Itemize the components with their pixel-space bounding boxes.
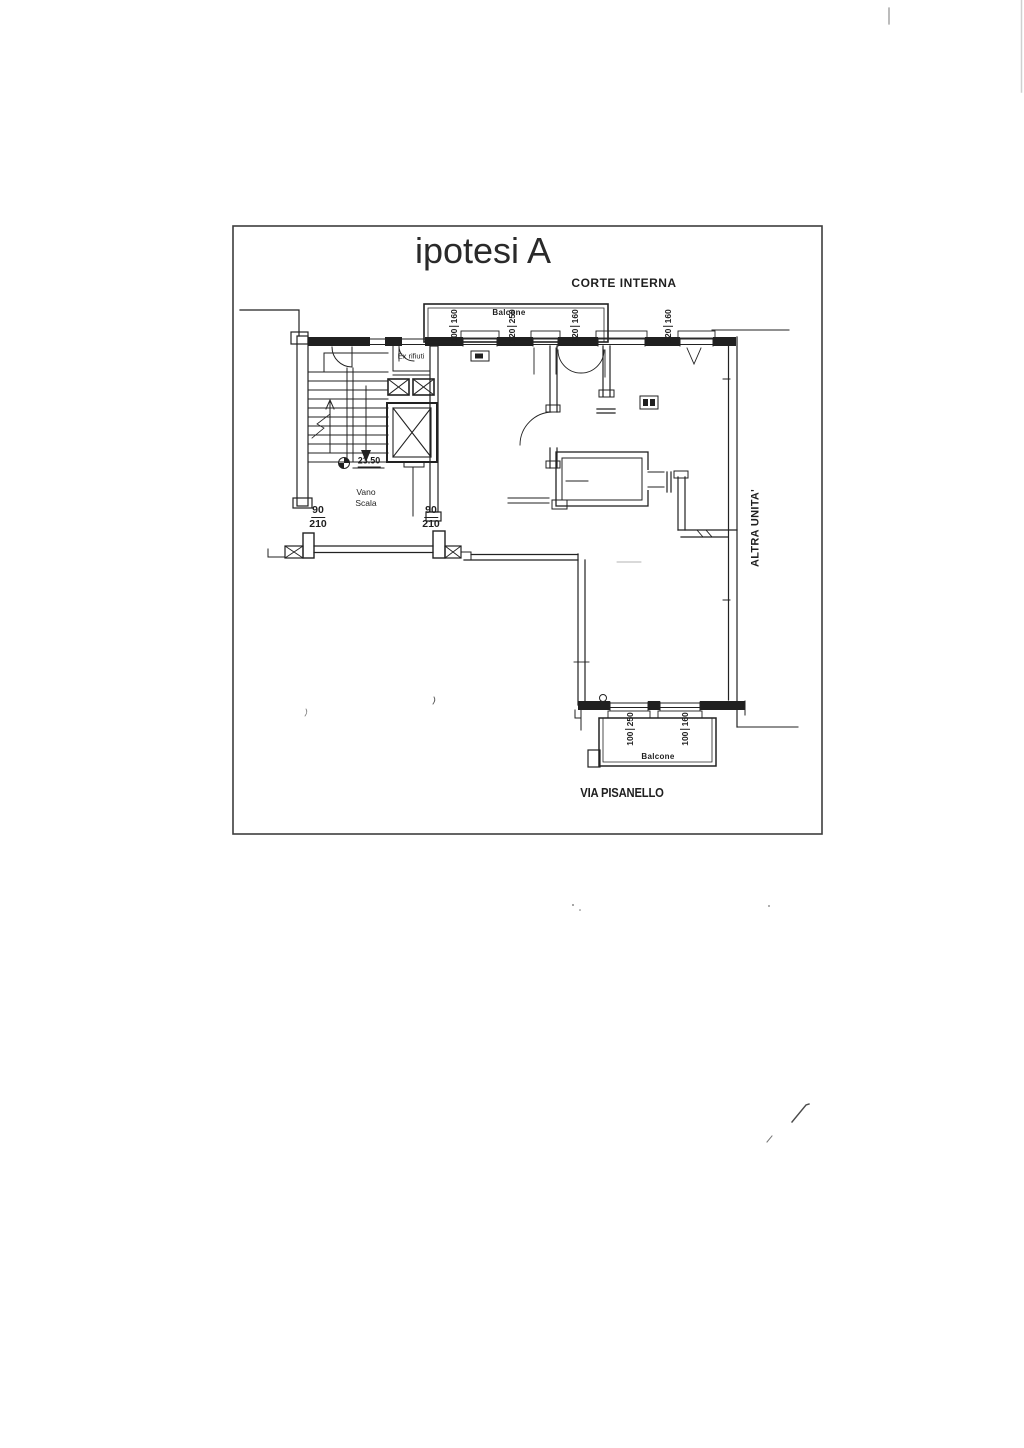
window-dim-top-1: 100 160 (449, 309, 459, 343)
door-jamb-icon (285, 546, 303, 558)
entrance-corridor (268, 531, 578, 560)
label-level-quota: 23.50 (358, 457, 381, 466)
label-ex-rifiuti: Ex rifiuti (398, 352, 425, 360)
door-dim-right: 90 210 (422, 505, 440, 529)
l-partition (674, 471, 737, 537)
interior-partitions (471, 346, 658, 503)
west-living-wall (574, 554, 589, 705)
floor-plan-drawing (0, 0, 1024, 1448)
north-wall-windows (437, 331, 736, 374)
label-vano-scala: Vano Scala (355, 487, 376, 509)
east-wall (723, 337, 737, 727)
stairs-down-arrow-icon (361, 386, 371, 462)
window-dim-top-3: 120 160 (570, 309, 580, 343)
stair-treads (309, 353, 388, 462)
window-dim-bottom-1: 100 250 (625, 712, 635, 746)
label-altra-unita: ALTRA UNITA' (751, 489, 762, 567)
window-dim-bottom-2: 100 160 (680, 712, 690, 746)
label-corte-interna: CORTE INTERNA (571, 277, 676, 289)
label-via-pisanello: VIA PISANELLO (580, 787, 664, 800)
door-dim-left: 90 210 (309, 505, 327, 529)
south-wall-windows (575, 695, 745, 731)
scan-artifacts (305, 0, 1022, 1142)
window-dim-top-4: 120 160 (663, 309, 673, 343)
shaft-x-icon (388, 379, 434, 395)
label-balcone-bottom: Balcone (641, 753, 674, 761)
door-jamb-icon (445, 546, 461, 558)
scanned-floor-plan-page: ipotesi A CORTE INTERNA VIA PISANELLO AL… (0, 0, 1024, 1448)
landing-door-swing (332, 347, 352, 367)
plan-title: ipotesi A (415, 233, 551, 269)
window-dim-top-2: 120 250 (507, 309, 517, 343)
bathroom-box (552, 452, 671, 509)
